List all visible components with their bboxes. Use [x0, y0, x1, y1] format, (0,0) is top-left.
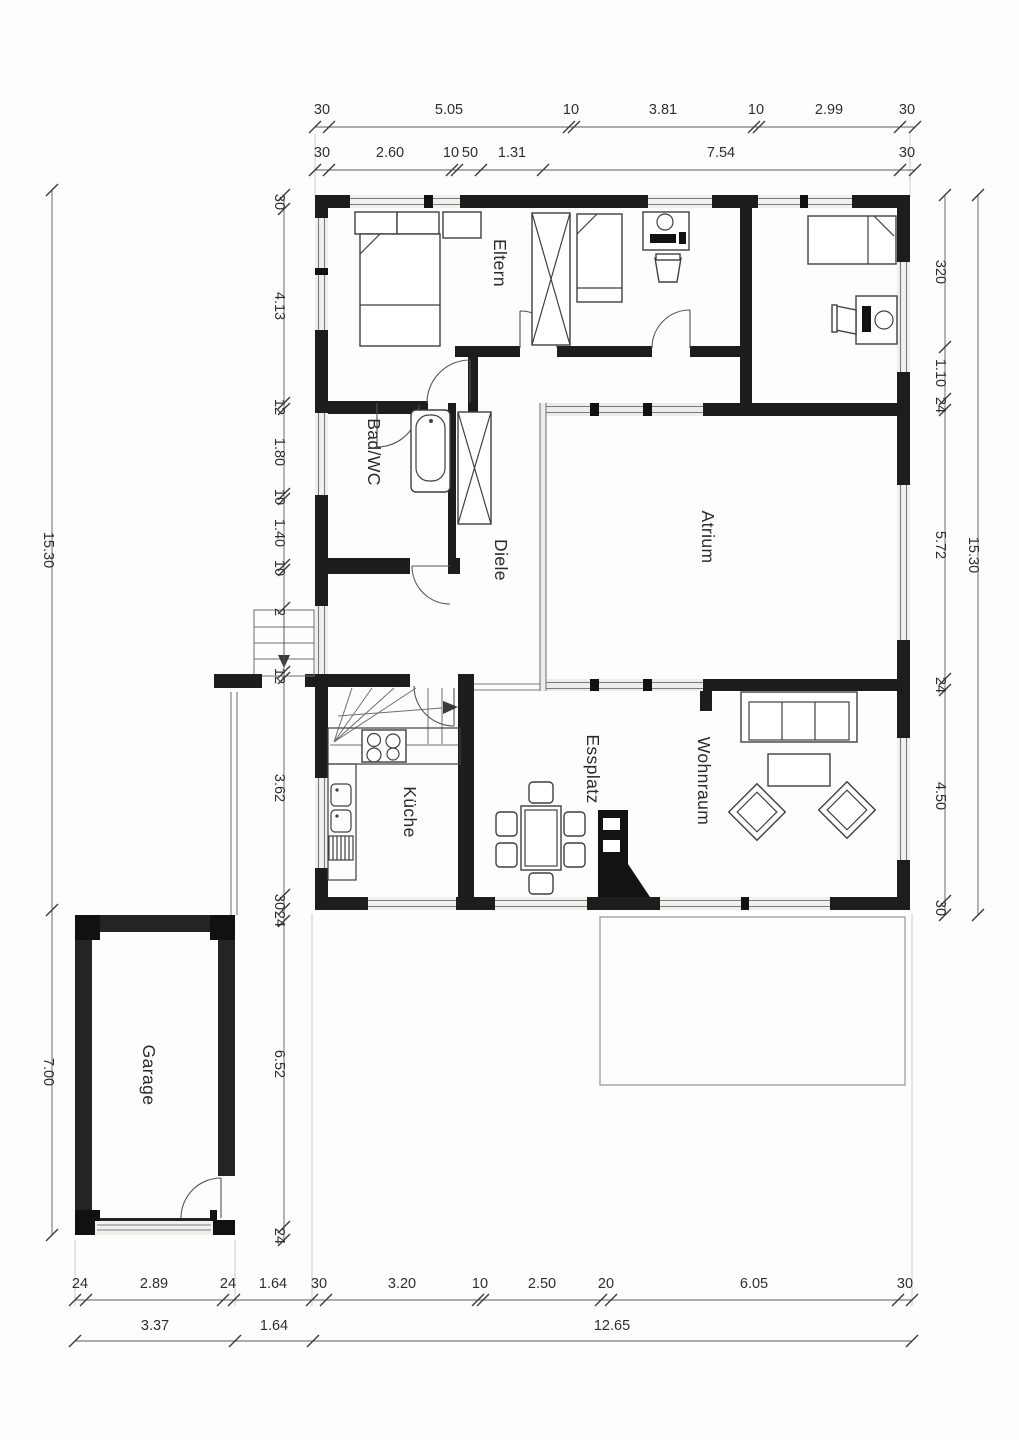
dim-label: 10	[472, 1276, 488, 1292]
dim-label: 1.80	[271, 438, 287, 466]
dim-label: 1.10	[932, 359, 948, 387]
dim-label: 10	[563, 102, 579, 118]
hall-closet	[458, 412, 491, 524]
single-bed	[577, 214, 622, 302]
kitchen-sink	[331, 784, 351, 832]
dim-label: 3.62	[271, 774, 287, 802]
dim-label: 2.99	[815, 102, 843, 118]
dim-label: 20	[598, 1276, 614, 1292]
dim-label: 30	[897, 1276, 913, 1292]
garage-gate	[95, 1221, 213, 1235]
dim-label: 320	[932, 260, 948, 284]
dim-label: 24	[932, 677, 948, 693]
dim-label: 30	[899, 102, 915, 118]
dim-label: 12	[271, 399, 287, 415]
dim-label: 2.89	[140, 1276, 168, 1292]
hall-door	[412, 566, 450, 604]
dim-label: 10	[271, 560, 287, 576]
dim-label: 6.05	[740, 1276, 768, 1292]
dim-label: 1.31	[498, 145, 526, 161]
double-bed	[360, 234, 440, 346]
dining-table	[521, 806, 561, 870]
nightstand	[355, 212, 397, 234]
dim-label: 4.13	[271, 292, 287, 320]
dim-label: 2.60	[376, 145, 404, 161]
dim-label: 5.05	[435, 102, 463, 118]
room-label-eltern: Eltern	[490, 239, 510, 287]
cooktop	[362, 730, 406, 762]
single-bed	[808, 216, 896, 264]
child-room-1-furniture	[577, 212, 689, 302]
living-room-furniture	[729, 692, 876, 840]
room-label-atrium: Atrium	[698, 511, 718, 564]
dim-label: 30	[271, 894, 287, 910]
chair	[832, 305, 856, 334]
desk	[643, 212, 689, 250]
bathtub	[411, 410, 450, 492]
floor-plan-drawing: 30 5.05 10 3.81 10 2.99 30 30 2.60 10 50…	[0, 0, 1019, 1440]
dim-label: 24	[932, 397, 948, 413]
wardrobe	[532, 213, 570, 345]
dim-label: 6.52	[271, 1050, 287, 1078]
room-label-essplatz: Essplatz	[583, 734, 603, 803]
chair	[564, 812, 585, 836]
chair	[564, 843, 585, 867]
dining-furniture	[496, 782, 650, 897]
dim-label: 7.00	[40, 1058, 56, 1086]
coffee-table	[768, 754, 830, 786]
dim-label: 3.37	[141, 1318, 169, 1334]
dim-label: 5.72	[932, 531, 948, 559]
dim-label: 30	[899, 145, 915, 161]
armchair	[729, 784, 786, 841]
room-label-bad-wc: Bad/WC	[364, 418, 384, 486]
dim-label: 24	[72, 1276, 88, 1292]
dim-label: 2	[271, 608, 287, 616]
nightstand	[397, 212, 439, 234]
chair	[496, 812, 517, 836]
dim-label: 10	[443, 145, 459, 161]
kitchen-counter	[328, 764, 356, 880]
armchair	[819, 782, 876, 839]
dim-label: 12	[271, 668, 287, 684]
chair	[529, 782, 553, 803]
dim-label: 30	[271, 194, 287, 210]
chair	[496, 843, 517, 867]
dim-label: 3.20	[388, 1276, 416, 1292]
room-label-diele: Diele	[491, 539, 511, 581]
chair	[529, 873, 553, 894]
dresser	[443, 212, 481, 238]
dim-label: 30	[932, 900, 948, 916]
chair	[655, 254, 681, 282]
dim-label: 12.65	[594, 1318, 630, 1334]
eltern-furniture	[355, 212, 570, 346]
dim-label: 15.30	[965, 537, 981, 573]
sofa	[741, 692, 857, 742]
dim-label: 24	[271, 911, 287, 927]
dim-label: 10	[748, 102, 764, 118]
fireplace	[598, 810, 650, 897]
dim-label: 7.54	[707, 145, 735, 161]
doors	[377, 310, 690, 726]
dim-label: 24	[220, 1276, 236, 1292]
floor-plan-page: 30 5.05 10 3.81 10 2.99 30 30 2.60 10 50…	[0, 0, 1019, 1440]
child-room-2-door	[652, 310, 690, 348]
dim-label: 30	[311, 1276, 327, 1292]
dim-label: 24	[271, 1228, 287, 1244]
child-room-2-furniture	[808, 216, 897, 344]
dim-label: 1.64	[259, 1276, 287, 1292]
dim-label: 15.30	[40, 532, 56, 568]
terrace	[600, 917, 905, 1085]
dim-label: 10	[271, 489, 287, 505]
dim-label: 1.64	[260, 1318, 288, 1334]
dim-label: 4.50	[932, 782, 948, 810]
dim-label: 50	[462, 145, 478, 161]
desk	[856, 296, 897, 344]
kitchen-furniture	[328, 728, 460, 880]
dim-label: 2.50	[528, 1276, 556, 1292]
courtyard-wall	[214, 674, 262, 915]
room-label-wohnraum: Wohnraum	[694, 737, 714, 825]
eltern-door	[427, 360, 470, 403]
dim-label: 1.40	[271, 519, 287, 547]
room-label-garage: Garage	[139, 1045, 159, 1106]
dishwasher	[329, 836, 353, 860]
room-label-kueche: Küche	[400, 786, 420, 838]
dim-label: 30	[314, 102, 330, 118]
entry-door	[315, 606, 328, 674]
dim-label: 30	[314, 145, 330, 161]
dim-label: 3.81	[649, 102, 677, 118]
